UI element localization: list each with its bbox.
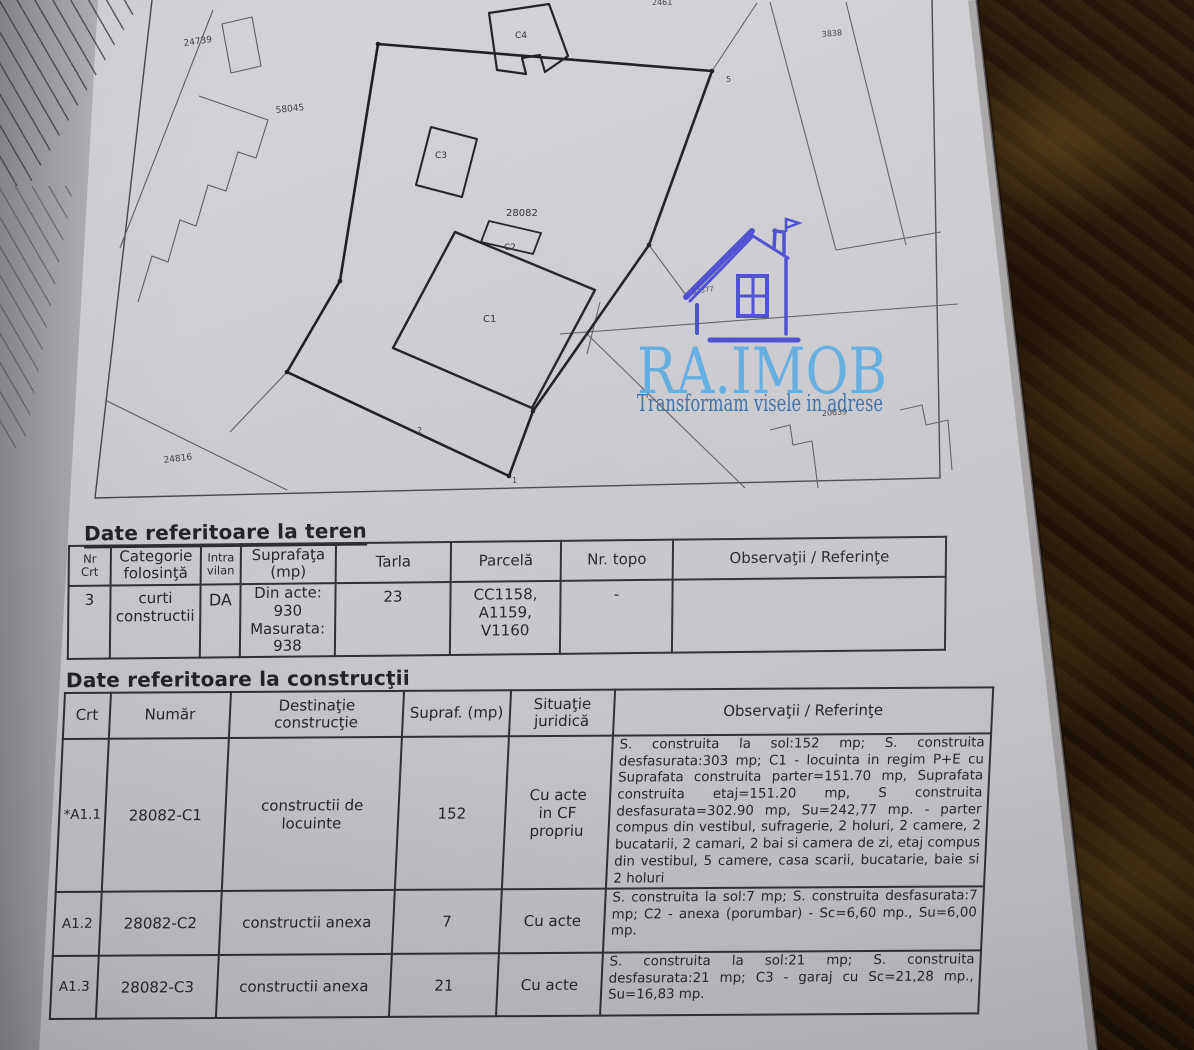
land-table: Nr Crt Categorie folosinţă Intra vilan S… [67, 536, 947, 660]
situatie-cell: Cu acte [496, 953, 603, 1017]
parcel-number: 24739 [183, 35, 213, 49]
parcel-number: 24816 [163, 453, 193, 466]
observatii-text: S. construita la sol:7 mp; S. construita… [610, 888, 978, 949]
land-parcela-cell: CC1158, A1159, V1160 [450, 581, 561, 655]
parcel-number: 28082 [506, 208, 538, 219]
header-tarla: Tarla [336, 542, 451, 583]
constructions-table: Crt Număr Destinaţie construcţie Supraf.… [49, 686, 994, 1020]
paper-edge-shadow [974, 0, 1094, 1050]
numar-cell: 28082-C1 [102, 738, 229, 892]
photo-stage: 24739 58045 28082 24816 3838 87577 20639… [0, 0, 1194, 1050]
land-categorie-cell: curti constructii [110, 585, 201, 659]
house-icon [686, 219, 799, 340]
vertex-label: 1 [512, 476, 517, 485]
land-nr-cell: 3 [68, 586, 111, 659]
building-c4 [489, 4, 568, 74]
header-situatie: Situaţie juridică [509, 690, 615, 737]
header-intravilan: Intra vilan [201, 544, 241, 584]
crt-cell: *A1.1 [56, 739, 109, 892]
observatii-cell: S. construita la sol:152 mp; S. construi… [606, 733, 991, 888]
destinatie-cell: constructii anexa [219, 890, 395, 955]
header-parcela: Parcelă [451, 541, 561, 582]
building-label-c2: C2 [504, 243, 516, 253]
destinatie-cell: constructii anexa [216, 954, 392, 1018]
situatie-cell: Cu acte in CF propriu [502, 736, 613, 890]
vertex-label: 5 [726, 75, 731, 84]
observatii-cell: S. construita la sol:21 mp; S. construit… [600, 950, 981, 1015]
header-categorie: Categorie folosinţă [111, 545, 201, 586]
construction-row: *A1.1 28082-C1 constructii de locuinte 1… [56, 733, 991, 892]
parcel-number-clipped: 2461 [652, 0, 672, 7]
header-suprafata: Suprafaţa (mp) [241, 543, 336, 584]
parcel-number: 3838 [821, 28, 842, 39]
supraf-cell: 152 [395, 736, 509, 890]
construction-row: A1.2 28082-C2 constructii anexa 7 Cu act… [53, 886, 984, 956]
land-intravilan-cell: DA [200, 584, 241, 657]
destinatie-cell: constructii de locuinte [222, 737, 402, 891]
vertex-label: 2 [417, 426, 422, 435]
logo-watermark: RA.IMOB Transformam visele in adrese [637, 219, 887, 417]
plan-frame [95, 0, 940, 498]
observatii-cell: S. construita la sol:7 mp; S. construita… [603, 886, 984, 952]
header-supraf: Supraf. (mp) [402, 690, 511, 737]
supraf-cell: 7 [392, 889, 502, 954]
observatii-text: S. construita la sol:21 mp; S. construit… [607, 952, 975, 1013]
land-observatii-cell [672, 577, 946, 653]
situatie-cell: Cu acte [499, 889, 606, 954]
logo-tagline-text: Transformam visele in adrese [637, 391, 883, 417]
observatii-text: S. construita la sol:152 mp; S. construi… [613, 735, 985, 886]
building-label-c3: C3 [435, 151, 447, 161]
building-label-c4: C4 [515, 31, 527, 41]
parcel-number: 58045 [275, 103, 305, 116]
header-destinatie: Destinaţie construcţie [229, 691, 404, 738]
header-numar: Număr [109, 692, 231, 739]
header-nr-topo: Nr. topo [561, 540, 673, 581]
numar-cell: 28082-C3 [96, 955, 219, 1019]
numar-cell: 28082-C2 [99, 891, 222, 956]
constructions-table-title: Date referitoare la construcţii [66, 666, 410, 692]
constructions-header-row: Crt Număr Destinaţie construcţie Supraf.… [63, 687, 993, 739]
header-nr-crt: Nr Crt [69, 546, 111, 586]
crt-cell: A1.2 [53, 892, 102, 956]
building-label-c1: C1 [483, 314, 496, 325]
header-observatii: Observaţii / Referinţe [613, 687, 993, 735]
land-nr-topo-cell: - [560, 580, 673, 654]
paper-edge-line [977, 0, 1098, 1050]
land-table-row: 3 curti constructii DA Din acte: 930 Mas… [68, 577, 946, 659]
land-tarla-cell: 23 [335, 582, 451, 656]
supraf-cell: 21 [389, 953, 499, 1017]
crt-cell: A1.3 [50, 956, 99, 1019]
header-crt: Crt [63, 693, 111, 739]
header-observatii: Observaţii / Referinţe [673, 537, 946, 580]
building-c3 [416, 127, 477, 197]
construction-row: A1.3 28082-C3 constructii anexa 21 Cu ac… [50, 950, 981, 1019]
land-suprafata-cell: Din acte: 930 Masurata: 938 [240, 583, 336, 657]
